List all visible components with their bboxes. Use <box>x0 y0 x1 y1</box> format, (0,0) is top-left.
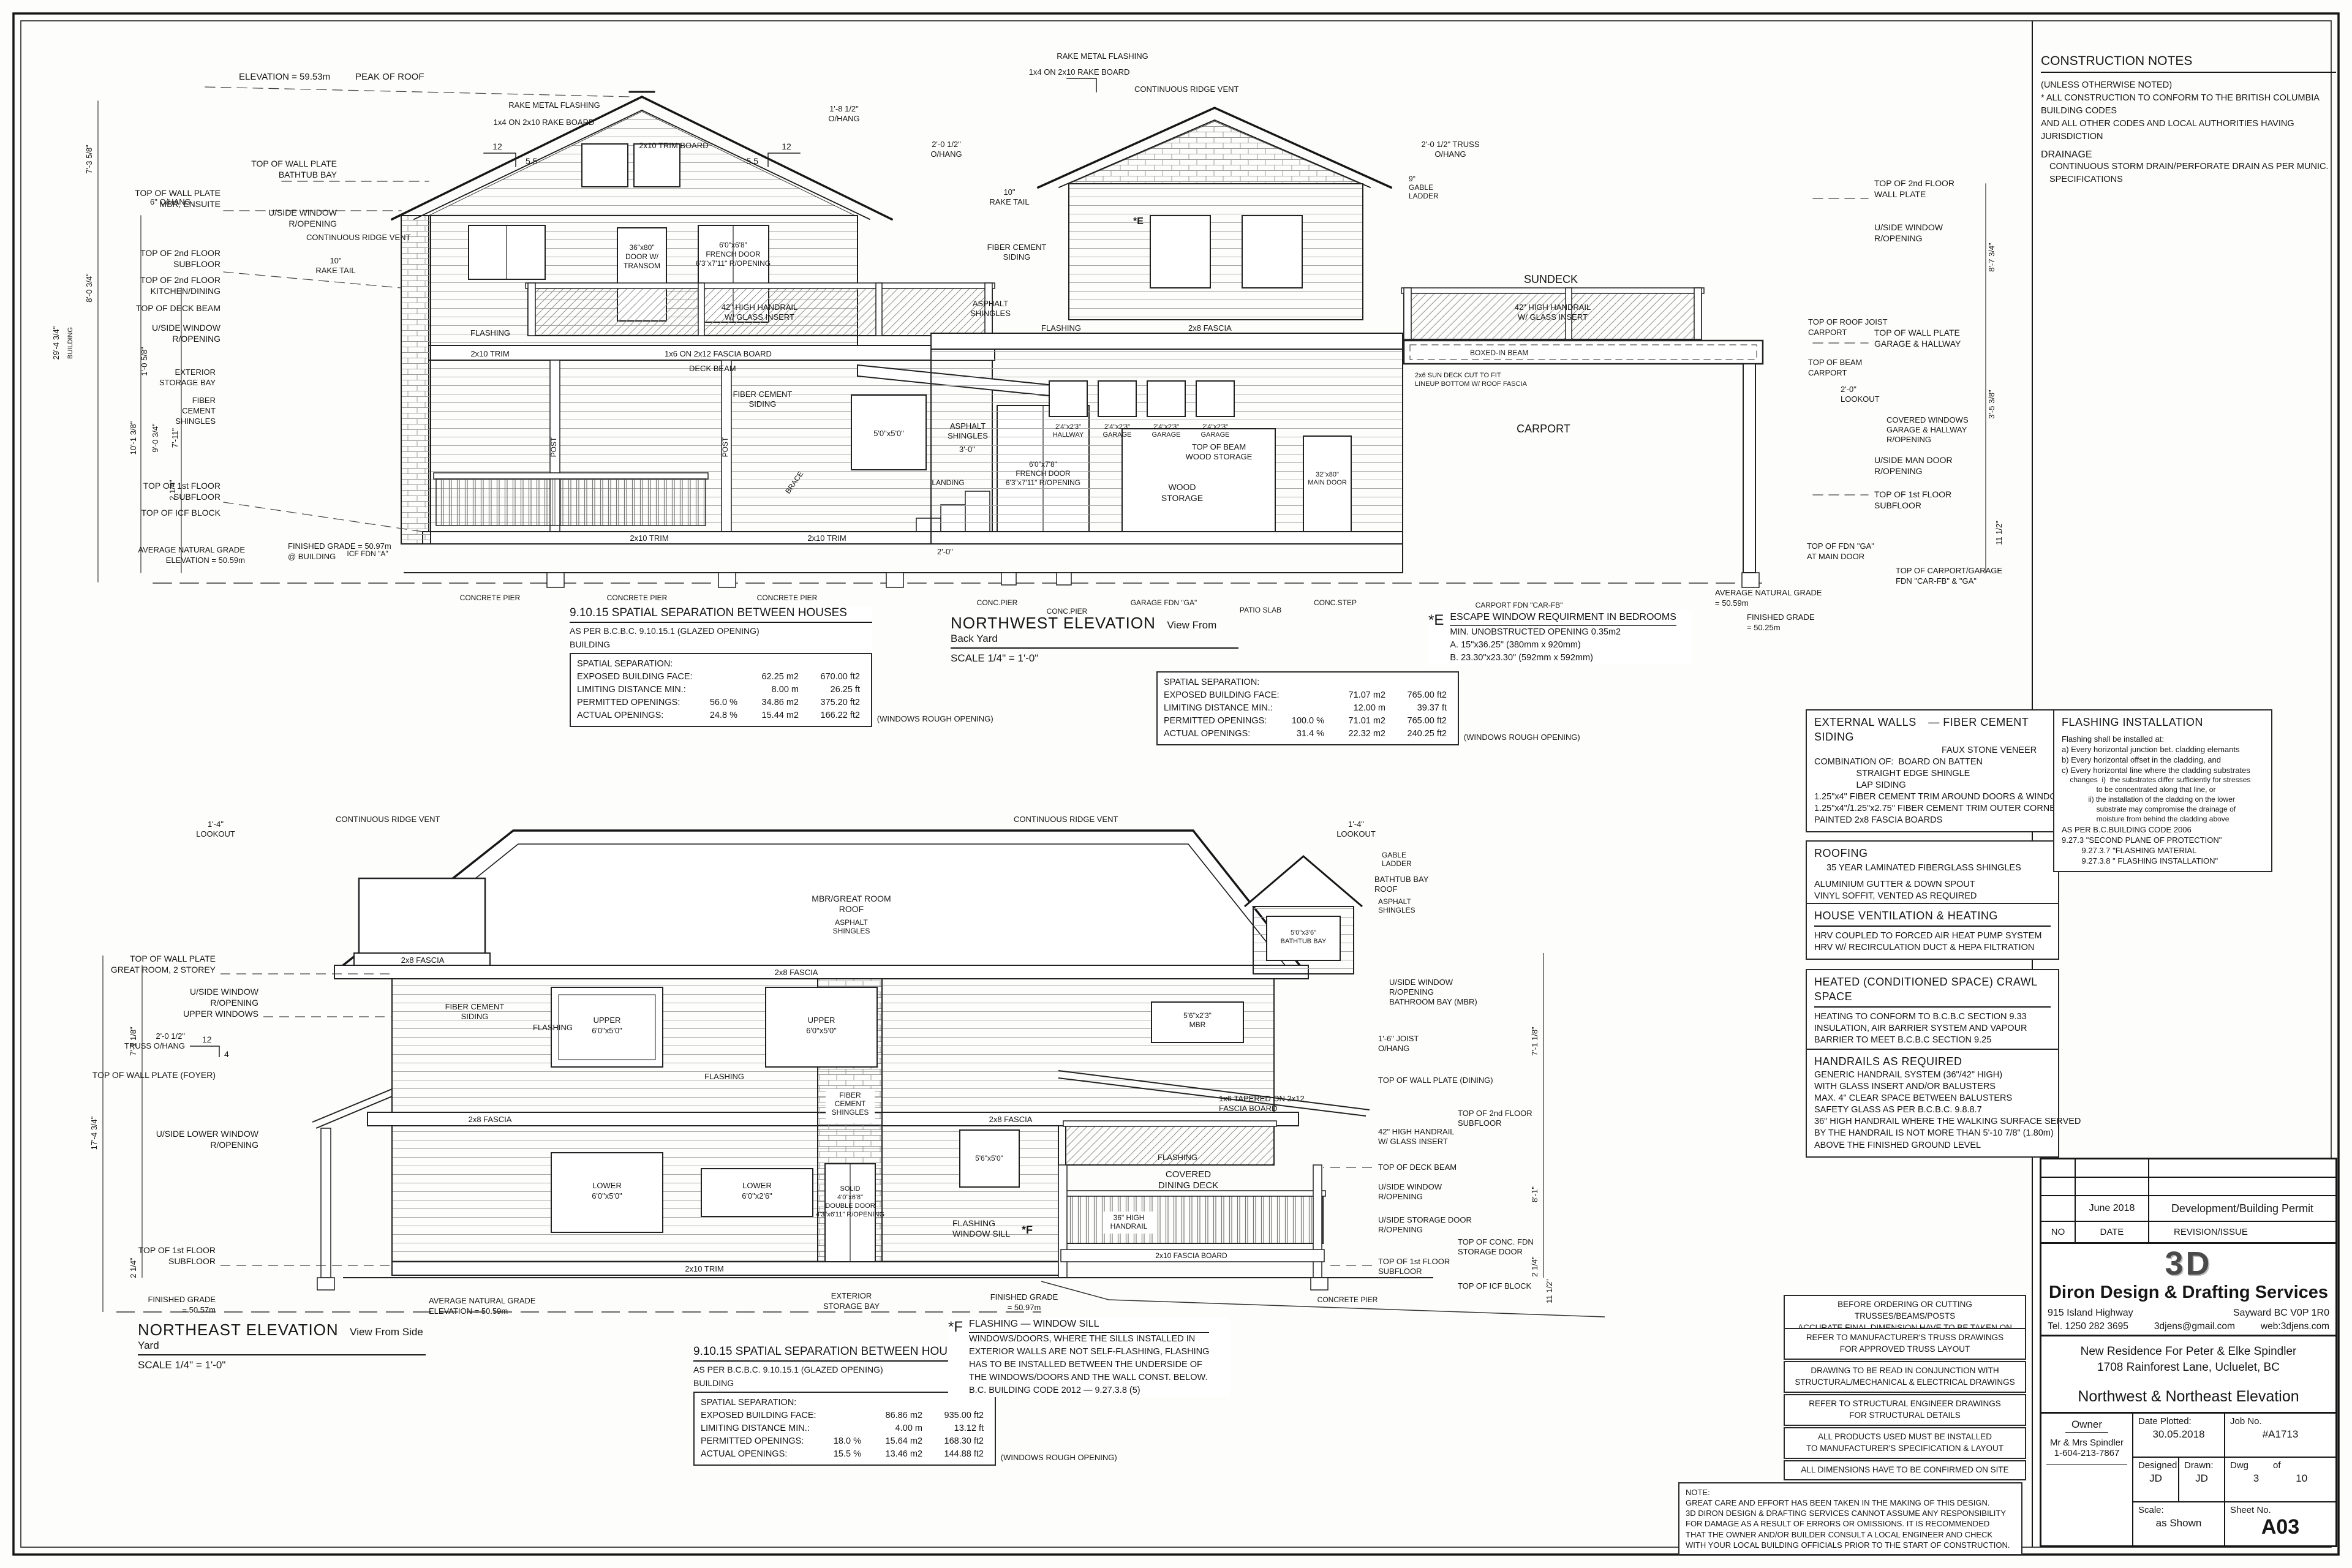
ne-dim-7118r: 7'-1 1/8" <box>1530 1027 1539 1056</box>
fi-line: moisture from behind the cladding above <box>2062 815 2264 824</box>
nw-frdoor-low-1: 6'0"x7'8" <box>1029 460 1057 469</box>
nw-oh20-1: 2'-0 1/2" <box>932 140 961 149</box>
disclaimer-title: NOTE: <box>1686 1487 2015 1498</box>
cell: 168.30 ft2 <box>922 1435 984 1448</box>
cell: 18.0 % <box>821 1435 861 1448</box>
gn-line: FOR APPROVED TRUSS LAYOUT <box>1789 1344 2021 1355</box>
nw-asphalt1-1: ASPHALT <box>973 299 1008 308</box>
cell: EXPOSED BUILDING FACE: <box>577 671 697 684</box>
nw-door-transom-1: 36"x80" <box>629 243 654 252</box>
nw-raketail-l2: RAKE TAIL <box>315 266 355 275</box>
ne-fin-grade-l2: = 50.57m <box>182 1305 216 1314</box>
nw-dim-877: 8'-7 3/4" <box>1987 243 1996 272</box>
nw-gladder-3: LADDER <box>1409 192 1439 200</box>
nw-fdnga-2: AT MAIN DOOR <box>1807 552 1864 561</box>
construction-note-line: AND ALL OTHER CODES AND LOCAL AUTHORITIE… <box>2041 118 2336 143</box>
ne-conc-fdn-2: STORAGE DOOR <box>1458 1247 1523 1256</box>
scale-label: Scale: <box>2138 1505 2219 1515</box>
gn-line: ALL PRODUCTS USED MUST BE INSTALLED <box>1789 1431 2021 1443</box>
crawl-line: HEATING TO CONFORM TO B.C.B.C SECTION 9.… <box>1814 1011 2051 1023</box>
project-line2: 1708 Rainforest Lane, Ucluelet, BC <box>2045 1361 2332 1374</box>
dwg-label: Dwg <box>2230 1460 2248 1471</box>
ne-t1f-r1: TOP OF 1st FLOOR <box>1378 1257 1450 1266</box>
cell: 34.86 m2 <box>737 696 799 709</box>
nw-door-transom-2: DOOR W/ <box>625 252 659 261</box>
nw-frdoor-up-2: FRENCH DOOR <box>706 250 761 258</box>
ne-flashing-1: FLASHING <box>533 1023 573 1032</box>
ne-tapered-2: FASCIA BOARD <box>1219 1104 1277 1113</box>
ne-dbl-door-4: 4'3"x6'11" R/OPENING <box>816 1211 884 1218</box>
cell: SPATIAL SEPARATION: <box>577 658 697 671</box>
drainage-subhead: DRAINAGE <box>2041 149 2336 160</box>
sheet-no-label: Sheet No. <box>2230 1505 2331 1515</box>
general-note-3: DRAWING TO BE READ IN CONJUNCTION WITH S… <box>1784 1361 2026 1393</box>
ne-handrail42-1: 42" HIGH HANDRAIL <box>1378 1127 1455 1136</box>
nw-lookout20-1: 2'-0" <box>1841 385 1856 394</box>
nw-post-1: POST <box>549 437 558 457</box>
fi-line: 9.27.3 "SECOND PLANE OF PROTECTION" <box>2062 835 2264 845</box>
cell: ACTUAL OPENINGS: <box>701 1448 821 1461</box>
ne-fcshingles-2: CEMENT <box>835 1099 866 1108</box>
nw-top-icf: TOP OF ICF BLOCK <box>141 508 221 518</box>
ne-covered-2: DINING DECK <box>1158 1180 1218 1191</box>
nw-slope-run-left2: 5.5 <box>747 156 759 166</box>
nw-dim30: 3'-0" <box>959 445 975 454</box>
ne-dbl-door-2: 4'0"x6'8" <box>837 1194 863 1201</box>
date-plotted-label: Date Plotted: <box>2138 1416 2219 1427</box>
nw-title-text: NORTHWEST ELEVATION <box>951 614 1156 632</box>
company-addr1: 915 Island Highway <box>2048 1308 2133 1319</box>
designed-label: Designed <box>2138 1460 2173 1471</box>
ne-bathtub-win-1: 5'0"x3'6" <box>1291 929 1316 937</box>
ne-twp-foyer: TOP OF WALL PLATE (FOYER) <box>92 1070 216 1080</box>
cell: 12.00 m <box>1324 702 1385 715</box>
nw-r-t1f-2: SUBFLOOR <box>1874 500 1921 510</box>
construction-note-line: * ALL CONSTRUCTION TO CONFORM TO THE BRI… <box>2041 92 2336 118</box>
nw-r-uside-2: R/OPENING <box>1874 233 1923 243</box>
ew-line: PAINTED 2x8 FASCIA BOARDS <box>1814 815 2051 826</box>
nw-label-rake-metal-right: RAKE METAL FLASHING <box>1057 51 1148 61</box>
designed-value: JD <box>2138 1472 2173 1485</box>
nw-raketail-r2: RAKE TAIL <box>989 197 1029 206</box>
handrail-line: ABOVE THE FINISHED GROUND LEVEL <box>1814 1140 2051 1151</box>
general-note-6: ALL DIMENSIONS HAVE TO BE CONFIRMED ON S… <box>1784 1460 2026 1480</box>
spatial-header: 9.10.15 SPATIAL SEPARATION BETWEEN HOUSE… <box>570 606 872 623</box>
nw-r-beamcarport-1: TOP OF BEAM <box>1808 358 1862 367</box>
ne-lower-win2-1: LOWER <box>742 1181 772 1190</box>
ne-avg-grade-1: AVERAGE NATURAL GRADE <box>429 1296 536 1305</box>
cell: 144.88 ft2 <box>922 1448 984 1461</box>
nw-fiber-shingles-3: SHINGLES <box>175 417 216 426</box>
nw-pier2: CONCRETE PIER <box>607 594 668 602</box>
ne-bathtub-win-2: BATHTUB BAY <box>1281 938 1327 945</box>
nw-dim-29: 29'-4 3/4" <box>51 326 61 360</box>
cell: PERMITTED OPENINGS: <box>701 1435 821 1448</box>
nw-r-avg-1: AVERAGE NATURAL GRADE <box>1715 588 1822 597</box>
company-box: 3D Diron Design & Drafting Services 915 … <box>2041 1244 2335 1336</box>
construction-note-line: (UNLESS OTHERWISE NOTED) <box>2041 79 2336 92</box>
company-tel: Tel. 1250 282 3695 <box>2048 1321 2128 1332</box>
nw-r-roofjoist-2: CARPORT <box>1808 328 1847 337</box>
ne-dim-174: 17'-4 3/4" <box>89 1116 99 1150</box>
nw-t2f-sub-1: TOP OF 2nd FLOOR <box>140 248 221 258</box>
revision-col-no: NO <box>2041 1222 2076 1242</box>
nw-oh18-1: 1'-8 1/2" <box>829 104 859 113</box>
ne-fin-grade-r2: = 50.97m <box>1008 1303 1041 1312</box>
ne-uside-bath-1: U/SIDE WINDOW <box>1389 978 1453 987</box>
roofing-lead: 35 YEAR LAMINATED FIBERGLASS SHINGLES <box>1826 863 2021 873</box>
vent-line: HRV W/ RECIRCULATION DUCT & HEPA FILTRAT… <box>1814 942 2051 954</box>
nw-top-beam-ws-1: TOP OF BEAM <box>1192 442 1246 451</box>
nw-twp-bathtub-1: TOP OF WALL PLATE <box>251 159 337 168</box>
nw-top-beam-ws-2: WOOD STORAGE <box>1186 452 1253 461</box>
ne-uside-win-1: U/SIDE WINDOW <box>1378 1182 1442 1191</box>
cell: 8.00 m <box>737 684 799 696</box>
ne-lookout-r2: LOOKOUT <box>1336 829 1376 839</box>
nw-patio: PATIO SLAB <box>1240 606 1281 614</box>
nw-pier3: CONCRETE PIER <box>757 594 818 602</box>
escape-title: ESCAPE WINDOW REQUIRMENT IN BEDROOMS <box>1450 610 1676 626</box>
nw-raketail-r1: 10" <box>1003 187 1015 197</box>
nw-top-deck-beam: TOP OF DECK BEAM <box>136 303 221 313</box>
drawn-value: JD <box>2184 1472 2219 1485</box>
cell: 15.44 m2 <box>737 709 799 722</box>
ne-trim210: 2x10 TRIM <box>685 1264 723 1273</box>
ne-bathtub-roof-1: BATHTUB BAY <box>1374 875 1429 884</box>
nw-ext-storage-2: STORAGE BAY <box>159 378 216 387</box>
project-line1: New Residence For Peter & Elke Spindler <box>2045 1345 2332 1359</box>
ne-twp-great-1: TOP OF WALL PLATE <box>130 954 216 963</box>
ne-fascia28-3: 2x8 FASCIA <box>469 1115 512 1124</box>
ne-fascia210: 2x10 FASCIA BOARD <box>1155 1251 1227 1260</box>
handrail-line: BY THE HANDRAIL IS NOT MORE THAN 5'-10 7… <box>1814 1128 2051 1139</box>
nw-dim-353: 3'-5 3/8" <box>1987 390 1996 419</box>
mid-spatial-table: SPATIAL SEPARATION: EXPOSED BUILDING FAC… <box>1156 671 1459 745</box>
job-no-label: Job No. <box>2230 1416 2331 1427</box>
nw-main-door-2: MAIN DOOR <box>1308 479 1347 486</box>
construction-notes-title: CONSTRUCTION NOTES <box>2041 54 2336 73</box>
nw-asphalt2-1: ASPHALT <box>950 421 986 431</box>
cell: 15.64 m2 <box>861 1435 922 1448</box>
nw-dim-1013: 10'-1 3/8" <box>129 421 138 454</box>
cell <box>821 1409 861 1422</box>
ventilation-box: HOUSE VENTILATION & HEATING HRV COUPLED … <box>1806 903 2059 960</box>
drawn-label: Drawn: <box>2184 1460 2219 1471</box>
nw-wood-storage-1: WOOD <box>1168 482 1196 492</box>
revision-col-rev: REVISION/ISSUE <box>2149 1222 2335 1242</box>
cell: 765.00 ft2 <box>1385 689 1447 702</box>
gn-line: DRAWING TO BE READ IN CONJUNCTION WITH <box>1789 1365 2021 1377</box>
ne-uside-storage-1: U/SIDE STORAGE DOOR <box>1378 1215 1472 1224</box>
ew-line: COMBINATION OF: BOARD ON BATTEN <box>1814 756 2051 768</box>
cell: ACTUAL OPENINGS: <box>577 709 697 722</box>
company-name: Diron Design & Drafting Services <box>2046 1283 2331 1303</box>
nw-main-door-1: 32"x80" <box>1316 471 1339 478</box>
nw-label-rake-metal-left: RAKE METAL FLASHING <box>508 100 600 110</box>
job-no-value: #A1713 <box>2230 1428 2331 1441</box>
ne-upper-win2-2: 6'0"x5'0" <box>806 1026 837 1035</box>
ne-handrail36-2: HANDRAIL <box>1110 1222 1148 1231</box>
company-logo: 3D <box>2046 1246 2331 1281</box>
spatial-sub: AS PER B.C.B.C. 9.10.15.1 (GLAZED OPENIN… <box>570 626 872 636</box>
ne-gladder-1: GABLE <box>1382 851 1406 859</box>
disclaimer-line: FOR DAMAGE AS A RESULT OF ERRORS OR OMIS… <box>1686 1518 2015 1529</box>
nw-carport-fdn: CARPORT FDN "CAR-FB" <box>1476 601 1563 609</box>
disclaimer-line: GREAT CARE AND EFFORT HAS BEEN TAKEN IN … <box>1686 1498 2015 1508</box>
handrail-line: GENERIC HANDRAIL SYSTEM (36"/42" HIGH) <box>1814 1069 2051 1081</box>
nw-r-beamcarport-2: CARPORT <box>1808 368 1847 377</box>
nw-handrail42-deck-2: W/ GLASS INSERT <box>725 312 794 322</box>
nw-slope-rise-left: 12 <box>492 141 502 151</box>
cell: LIMITING DISTANCE MIN.: <box>701 1422 821 1435</box>
ne-roof-main-1: MBR/GREAT ROOM <box>812 894 891 903</box>
nw-slope-run-left: 5.5 <box>526 156 538 166</box>
owner-cell: Owner Mr & Mrs Spindler 1-604-213-7867 <box>2041 1414 2133 1545</box>
ne-mbr-win-1: 5'6"x2'3" <box>1183 1011 1212 1020</box>
cell <box>697 671 737 684</box>
nw-covwin-2: GARAGE & HALLWAY <box>1887 425 1967 434</box>
cell: 670.00 ft2 <box>799 671 860 684</box>
ne-dim-214l: 2 1/4" <box>129 1257 138 1278</box>
cell <box>821 1422 861 1435</box>
nw-r-t2fwp-2: WALL PLATE <box>1874 189 1926 199</box>
northwest-elevation-drawing: ELEVATION = 59.53m PEAK OF ROOF RAKE MET… <box>51 51 2003 632</box>
nw-raketail-l1: 10" <box>330 256 341 265</box>
nw-fascia28-r: 2x8 FASCIA <box>1188 323 1232 333</box>
roofing-title: ROOFING <box>1814 847 1868 859</box>
flashing-f-line: B.C. BUILDING CODE 2012 — 9.27.3.8 (5) <box>969 1384 1209 1397</box>
nw-frdoor-low-3: 6'3"x7'11" R/OPENING <box>1006 478 1080 487</box>
fi-line: c) Every horizontal line where the cladd… <box>2062 765 2264 775</box>
nw-uside-win-1: U/SIDE WINDOW <box>268 208 337 217</box>
cell: 375.20 ft2 <box>799 696 860 709</box>
ne-fascia28-1: 2x8 FASCIA <box>401 956 445 965</box>
nw-trim-board: 2x10 TRIM BOARD <box>639 141 708 150</box>
nw-sundeck-note-1: 2x6 SUN DECK CUT TO FIT <box>1415 372 1501 379</box>
nw-t2f-sub-2: SUBFLOOR <box>173 259 221 269</box>
ne-storage-bay-2: STORAGE BAY <box>823 1302 880 1311</box>
nw-whall-2: HALLWAY <box>1053 431 1084 439</box>
cell: SPATIAL SEPARATION: <box>701 1396 821 1409</box>
nw-pier4: CONC.PIER <box>977 598 1018 607</box>
ne-top-icf: TOP OF ICF BLOCK <box>1458 1281 1531 1291</box>
nw-trim-mid: 2x10 TRIM <box>470 349 509 358</box>
ne-lower-win1-1: LOWER <box>592 1181 622 1190</box>
cell: 935.00 ft2 <box>922 1409 984 1422</box>
nw-conc-step: CONC.STEP <box>1314 598 1357 607</box>
ne-flashing-2: FLASHING <box>704 1072 744 1081</box>
handrail-line: 36" HIGH HANDRAIL WHERE THE WALKING SURF… <box>1814 1116 2051 1128</box>
cell: PERMITTED OPENINGS: <box>1164 715 1284 728</box>
nw-dim-735: 7'-3 5/8" <box>85 145 94 174</box>
nw-frdoor-low-2: FRENCH DOOR <box>1016 469 1071 478</box>
nw-wood-storage-2: STORAGE <box>1161 493 1203 503</box>
nw-covwin-1: COVERED WINDOWS <box>1887 415 1969 424</box>
crawl-space-box: HEATED (CONDITIONED SPACE) CRAWL SPACE H… <box>1806 969 2059 1052</box>
roofing-line: VINYL SOFFIT, VENTED AS REQUIRED <box>1814 891 2051 902</box>
ne-twp-dining: TOP OF WALL PLATE (DINING) <box>1378 1076 1493 1085</box>
ne-bathtub-asphalt-1: ASPHALT <box>1378 897 1411 906</box>
nw-elevation-title: NORTHWEST ELEVATION View From Back Yard … <box>951 614 1238 665</box>
nw-dim-bldg: BUILDING <box>67 327 74 359</box>
nw-icf-fdn: ICF FDN "A" <box>347 549 388 558</box>
ne-conc-pier: CONCRETE PIER <box>1317 1295 1378 1304</box>
ne-scale-text: SCALE 1/4" = 1'-0" <box>138 1359 426 1371</box>
crawl-title: HEATED (CONDITIONED SPACE) CRAWL SPACE <box>1814 975 2051 1008</box>
nw-post-2: POST <box>721 437 729 457</box>
ne-t1f-l2: SUBFLOOR <box>168 1256 216 1266</box>
nw-fdnga-1: TOP OF FDN "GA" <box>1807 541 1874 551</box>
nw-gladder-1: 9" <box>1409 175 1415 183</box>
ne-mark-f: *F <box>1022 1224 1033 1236</box>
nw-sundeck-note-2: LINEUP BOTTOM W/ ROOF FASCIA <box>1415 380 1528 388</box>
ne-fascia28-2: 2x8 FASCIA <box>775 968 818 977</box>
date-plotted-value: 30.05.2018 <box>2138 1428 2219 1441</box>
cell: 39.37 ft <box>1385 702 1447 715</box>
nw-handrail42-deck-1: 42" HIGH HANDRAIL <box>722 303 798 312</box>
handrail-line: SAFETY GLASS AS PER B.C.B.C. 9.8.8.7 <box>1814 1104 2051 1116</box>
nw-uside-win-mid-2: R/OPENING <box>172 334 221 344</box>
cell: 62.25 m2 <box>737 671 799 684</box>
ne-t1f-r2: SUBFLOOR <box>1378 1267 1422 1276</box>
nw-label-rake-board-left: 1x4 ON 2x10 RAKE BOARD <box>494 118 595 127</box>
ne-flashing-sill-1: FLASHING <box>952 1218 995 1228</box>
ne-fcshingles-1: FIBER <box>839 1091 861 1099</box>
flashing-f-line: HAS TO BE INSTALLED BETWEEN THE UNDERSID… <box>969 1359 1209 1371</box>
windows-rough-opening-note: (WINDOWS ROUGH OPENING) <box>1464 733 1580 742</box>
ne-dim-81: 8'-1" <box>1530 1186 1539 1202</box>
ne-asphalt-2: SHINGLES <box>833 927 870 935</box>
gn-line: ALL DIMENSIONS HAVE TO BE CONFIRMED ON S… <box>1789 1464 2021 1476</box>
handrail-line: MAX. 4" CLEAR SPACE BETWEEN BALUSTERS <box>1814 1093 2051 1104</box>
fi-line: ii) the installation of the cladding on … <box>2062 795 2264 805</box>
flashing-f-line: EXTERIOR WALLS ARE NOT SELF-FLASHING, FL… <box>969 1346 1209 1359</box>
ne-t2f-sub-1: TOP OF 2nd FLOOR <box>1458 1109 1532 1118</box>
nw-uside-win-2: R/OPENING <box>288 219 337 228</box>
nw-uside-win-mid-1: U/SIDE WINDOW <box>152 323 221 333</box>
company-email: 3djens@gmail.com <box>2154 1321 2235 1332</box>
nw-fin-grade-2: @ BUILDING <box>288 552 336 561</box>
handrails-title: HANDRAILS AS REQUIRED <box>1814 1055 2051 1069</box>
ne-uside-upper-1: U/SIDE WINDOW <box>190 987 259 997</box>
cell: 26.25 ft <box>799 684 860 696</box>
escape-line: A. 15"x36.25" (380mm x 920mm) <box>1450 639 1676 652</box>
cell: 31.4 % <box>1284 728 1324 741</box>
ne-asphalt-1: ASPHALT <box>835 918 868 927</box>
nw-wgar2-1: 2'4"x2'3" <box>1153 423 1179 431</box>
nw-lookout20-2: LOOKOUT <box>1841 394 1880 404</box>
fi-line: to be concentrated along that line, or <box>2062 785 2264 795</box>
nw-carportfdn2-1: TOP OF CARPORT/GARAGE <box>1896 566 2002 575</box>
gn-line: REFER TO STRUCTURAL ENGINEER DRAWINGS <box>1789 1398 2021 1410</box>
nw-r-wpgarage-2: GARAGE & HALLWAY <box>1874 339 1961 349</box>
flashing-installation-box: FLASHING INSTALLATION Flashing shall be … <box>2053 709 2272 872</box>
nw-t2f-kitchen-2: KITCHEN/DINING <box>151 286 221 296</box>
cell: 24.8 % <box>697 709 737 722</box>
nw-garage-fdn: GARAGE FDN "GA" <box>1131 598 1197 607</box>
crawl-line: BARRIER TO MEET B.C.B.C SECTION 9.25 <box>1814 1035 2051 1046</box>
nw-asphalt1-2: SHINGLES <box>970 309 1011 318</box>
cell: LIMITING DISTANCE MIN.: <box>577 684 697 696</box>
nw-trussoh-1: 2'-0 1/2" TRUSS <box>1421 140 1479 149</box>
northeast-elevation-drawing: 1'-4" LOOKOUT 1'-4" LOOKOUT CONTINUOUS R… <box>89 815 1605 1317</box>
title-block: June 2018 Development/Building Permit NO… <box>2040 1158 2337 1547</box>
escape-mark: *E <box>1428 610 1444 631</box>
ne-tapered-1: 1x6 TAPERED ON 2x12 <box>1219 1094 1305 1103</box>
nw-wgar3-2: GARAGE <box>1200 431 1229 439</box>
ne-flashing-sill-2: WINDOW SILL <box>952 1229 1010 1238</box>
cell: ACTUAL OPENINGS: <box>1164 728 1284 741</box>
nw-mark-e: *E <box>1133 216 1144 227</box>
nw-fcsiding2-2: SIDING <box>749 399 777 409</box>
owner-label: Owner <box>2065 1419 2108 1433</box>
ne-upper-win1-1: UPPER <box>594 1016 621 1025</box>
nw-oh20-2: O/HANG <box>930 149 962 159</box>
nw-dim-803: 8'-0 3/4" <box>85 273 94 303</box>
nw-twp-bathtub-2: BATHTUB BAY <box>279 170 337 179</box>
handrail-line: WITH GLASS INSERT AND/OR BALUSTERS <box>1814 1081 2051 1093</box>
gn-line: REFER TO MANUFACTURER'S TRUSS DRAWINGS <box>1789 1332 2021 1344</box>
handrails-box: HANDRAILS AS REQUIRED GENERIC HANDRAIL S… <box>1806 1049 2059 1158</box>
nw-whall-1: 2'4"x2'3" <box>1055 423 1081 431</box>
nw-ridge-vent-left: CONTINUOUS RIDGE VENT <box>306 233 411 242</box>
nw-wgar1-1: 2'4"x2'3" <box>1104 423 1130 431</box>
ne-top-deck-beam: TOP OF DECK BEAM <box>1378 1163 1457 1172</box>
external-walls-title3: FAUX STONE VENEER <box>1814 745 2051 756</box>
fi-line: Flashing shall be installed at: <box>2062 734 2264 744</box>
gn-line: FOR STRUCTURAL DETAILS <box>1789 1410 2021 1422</box>
nw-ext-storage-1: EXTERIOR <box>175 367 216 377</box>
ne-joist-oh-1: 1'-6" JOIST <box>1378 1034 1419 1043</box>
ne-uside-lower-2: R/OPENING <box>210 1140 258 1150</box>
gn-line: STRUCTURAL/MECHANICAL & ELECTRICAL DRAWI… <box>1789 1377 2021 1389</box>
ne-ridge-vent-2: CONTINUOUS RIDGE VENT <box>1014 815 1118 824</box>
ne-fascia28-4: 2x8 FASCIA <box>989 1115 1033 1124</box>
nw-dim-214: 2 1/4" <box>168 480 177 500</box>
cell: 71.07 m2 <box>1324 689 1385 702</box>
sheet-no-value: A03 <box>2230 1515 2331 1539</box>
cell: PERMITTED OPENINGS: <box>577 696 697 709</box>
flashing-install-title: FLASHING INSTALLATION <box>2062 715 2264 730</box>
external-walls-box: EXTERNAL WALLS — FIBER CEMENT SIDING FAU… <box>1806 709 2059 832</box>
ne-slope-run: 4 <box>224 1049 229 1059</box>
ne-joist-oh-2: O/HANG <box>1378 1044 1409 1053</box>
disclaimer-line: WITH YOUR LOCAL BUILDING OFFICIALS PRIOR… <box>1686 1540 2015 1550</box>
ne-twp-great-2: GREAT ROOM, 2 STOREY <box>111 965 216 974</box>
ne-flashing-3: FLASHING <box>1158 1153 1197 1162</box>
nw-dim20: 2'-0" <box>937 547 953 556</box>
fi-line: 9.27.3.7 "FLASHING MATERIAL <box>2062 845 2264 856</box>
dwg-total: 10 <box>2296 1472 2307 1485</box>
ne-title-text: NORTHEAST ELEVATION <box>138 1321 339 1339</box>
ne-win5650: 5'6"x5'0" <box>975 1154 1003 1163</box>
cell: SPATIAL SEPARATION: <box>1164 676 1284 689</box>
dwg-no: 3 <box>2253 1472 2259 1485</box>
cell <box>697 684 737 696</box>
nw-oh18-2: O/HANG <box>828 114 859 123</box>
nw-trussoh-2: O/HANG <box>1434 149 1466 159</box>
nw-r-roofjoist-1: TOP OF ROOF JOIST <box>1808 317 1888 326</box>
nw-spatial-table: 9.10.15 SPATIAL SEPARATION BETWEEN HOUSE… <box>570 606 872 727</box>
nw-trim-base1: 2x10 TRIM <box>630 533 668 543</box>
gn-line: TO MANUFACTURER'S SPECIFICATION & LAYOUT <box>1789 1443 2021 1455</box>
ne-bathtub-asphalt-2: SHINGLES <box>1378 906 1415 914</box>
ne-lower-win1-2: 6'0"x5'0" <box>592 1191 622 1200</box>
nw-label-elevation-peak: ELEVATION = 59.53m <box>239 72 330 82</box>
nw-handrail42-sundeck-2: W/ GLASS INSERT <box>1518 312 1588 322</box>
nw-dim-711: 7'-11" <box>170 428 179 448</box>
ne-t1f-l1: TOP OF 1st FLOOR <box>138 1245 216 1255</box>
